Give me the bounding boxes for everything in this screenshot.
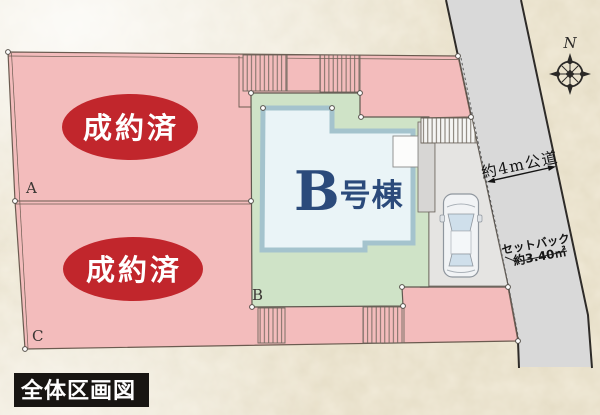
building-b-label-suffix: 号棟 bbox=[340, 178, 404, 214]
car-rear-window bbox=[449, 254, 473, 266]
sold-badge-lot-c: 成約済 bbox=[63, 237, 203, 301]
car-mirror-left bbox=[440, 215, 445, 222]
sold-label-a: 成約済 bbox=[83, 111, 179, 145]
lot-a-letter: A bbox=[25, 179, 37, 197]
plan-title: 全体区画図 bbox=[20, 378, 136, 404]
building-porch bbox=[393, 136, 418, 167]
site-plan-svg: 成約済 成約済 B号棟 A B C 約4m公道 セットバック 約3.40㎡ bbox=[0, 0, 600, 415]
stairs-bottom-left bbox=[258, 308, 285, 343]
site-plan: 成約済 成約済 B号棟 A B C 約4m公道 セットバック 約3.40㎡ bbox=[0, 0, 600, 415]
car-windshield bbox=[448, 214, 474, 231]
plan-title-box: 全体区画図 bbox=[14, 373, 149, 407]
parked-car bbox=[440, 194, 482, 277]
building-b-label-main: B bbox=[294, 159, 340, 223]
car-roof bbox=[451, 231, 471, 254]
lot-c-letter: C bbox=[32, 327, 43, 345]
compass-north-label: N bbox=[562, 34, 577, 52]
sold-badge-lot-a: 成約済 bbox=[62, 94, 198, 160]
stairs-bottom-right bbox=[363, 307, 404, 343]
car-mirror-right bbox=[478, 215, 483, 222]
stairs-entrance bbox=[421, 118, 477, 143]
lot-b-letter: B bbox=[252, 286, 263, 304]
stairs-top-left bbox=[243, 55, 287, 91]
sold-label-c: 成約済 bbox=[86, 253, 182, 287]
stairs-top-right bbox=[320, 55, 360, 92]
